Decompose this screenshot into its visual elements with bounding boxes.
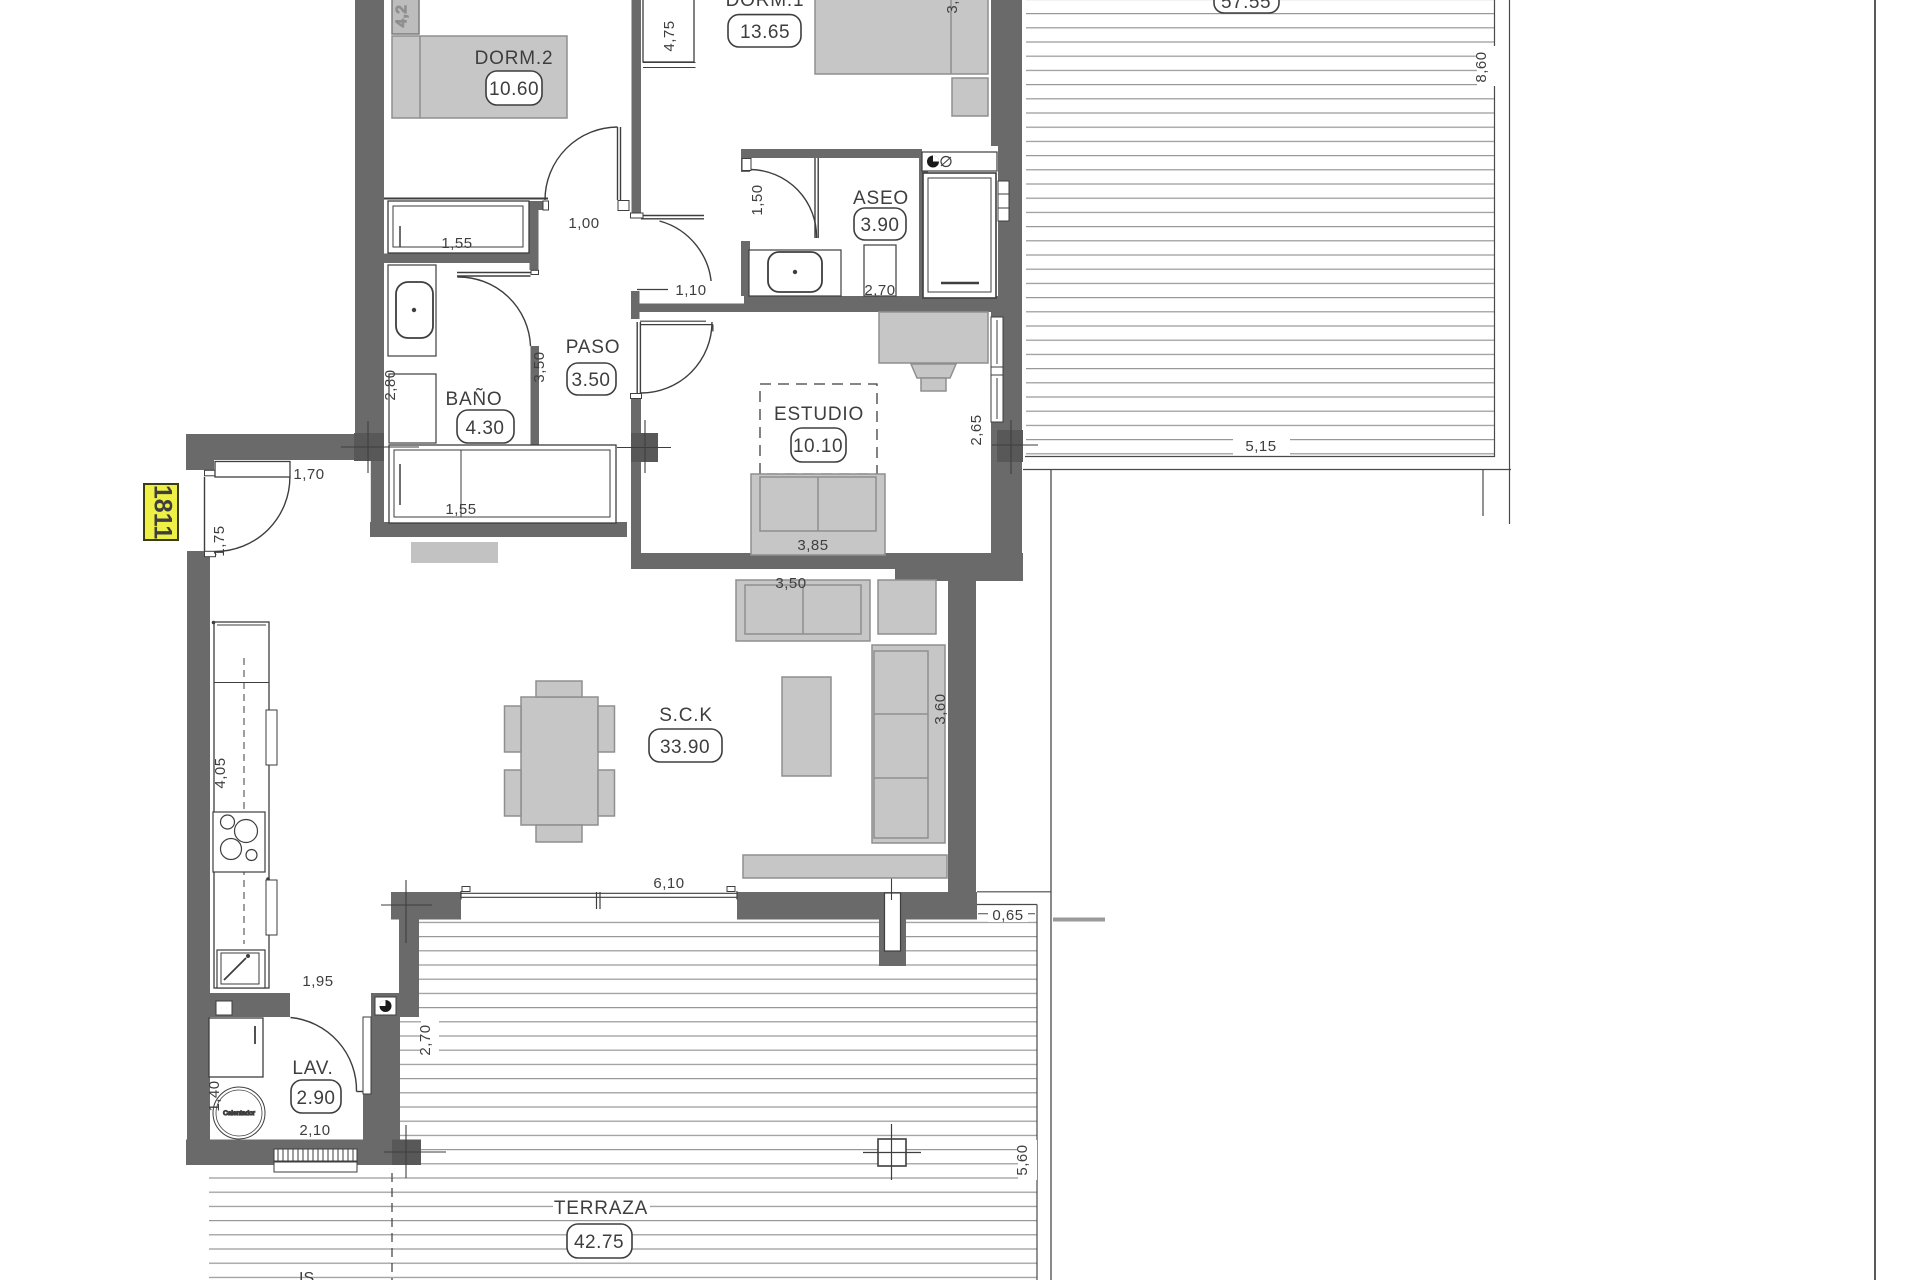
svg-text:ESTUDIO: ESTUDIO bbox=[774, 404, 864, 425]
svg-text:6,10: 6,10 bbox=[653, 875, 684, 892]
svg-text:1,55: 1,55 bbox=[445, 501, 476, 518]
svg-text:3,45: 3,45 bbox=[944, 0, 961, 14]
svg-text:ASEO: ASEO bbox=[853, 188, 909, 209]
svg-text:2,80: 2,80 bbox=[382, 369, 399, 400]
svg-text:5,60: 5,60 bbox=[1014, 1144, 1031, 1175]
svg-text:4,2: 4,2 bbox=[393, 5, 410, 27]
svg-text:1,00: 1,00 bbox=[568, 215, 599, 232]
svg-text:PASO: PASO bbox=[566, 337, 621, 358]
svg-text:3,60: 3,60 bbox=[932, 693, 949, 724]
svg-text:IS: IS bbox=[299, 1270, 314, 1280]
svg-text:1,10: 1,10 bbox=[675, 282, 706, 299]
svg-text:3.50: 3.50 bbox=[572, 370, 611, 391]
svg-text:Calentador: Calentador bbox=[223, 1110, 256, 1117]
svg-text:2.90: 2.90 bbox=[297, 1088, 336, 1109]
svg-text:3,85: 3,85 bbox=[797, 537, 828, 554]
svg-text:57.55: 57.55 bbox=[1221, 0, 1271, 13]
svg-text:4,05: 4,05 bbox=[212, 757, 229, 788]
svg-text:LAV.: LAV. bbox=[292, 1058, 333, 1079]
svg-text:TERRAZA: TERRAZA bbox=[554, 1198, 648, 1219]
svg-text:2,70: 2,70 bbox=[864, 282, 895, 299]
svg-text:4,75: 4,75 bbox=[661, 20, 678, 51]
svg-text:1,50: 1,50 bbox=[749, 184, 766, 215]
svg-text:2,10: 2,10 bbox=[299, 1122, 330, 1139]
svg-text:13.65: 13.65 bbox=[740, 22, 790, 43]
svg-text:3,50: 3,50 bbox=[531, 351, 548, 382]
svg-text:3,50: 3,50 bbox=[775, 575, 806, 592]
svg-text:10.60: 10.60 bbox=[489, 79, 539, 100]
svg-text:33.90: 33.90 bbox=[660, 737, 710, 758]
svg-text:0,65: 0,65 bbox=[992, 907, 1023, 924]
svg-text:3.90: 3.90 bbox=[861, 215, 900, 236]
svg-text:1,75: 1,75 bbox=[211, 525, 228, 556]
svg-text:DORM.1: DORM.1 bbox=[726, 0, 805, 11]
svg-text:2,70: 2,70 bbox=[417, 1024, 434, 1055]
svg-text:1,55: 1,55 bbox=[441, 235, 472, 252]
svg-text:2,65: 2,65 bbox=[968, 414, 985, 445]
svg-text:BAÑO: BAÑO bbox=[445, 388, 502, 410]
svg-text:1811: 1811 bbox=[148, 485, 176, 539]
svg-text:1,40: 1,40 bbox=[206, 1080, 223, 1111]
svg-text:1,70: 1,70 bbox=[293, 466, 324, 483]
svg-text:10.10: 10.10 bbox=[793, 436, 843, 457]
svg-text:5,15: 5,15 bbox=[1245, 438, 1276, 455]
svg-text:42.75: 42.75 bbox=[574, 1232, 624, 1253]
svg-text:8,60: 8,60 bbox=[1473, 51, 1490, 82]
svg-text:4.30: 4.30 bbox=[466, 418, 505, 439]
svg-text:DORM.2: DORM.2 bbox=[475, 48, 554, 69]
svg-text:S.C.K: S.C.K bbox=[659, 705, 713, 726]
svg-text:1,95: 1,95 bbox=[302, 973, 333, 990]
